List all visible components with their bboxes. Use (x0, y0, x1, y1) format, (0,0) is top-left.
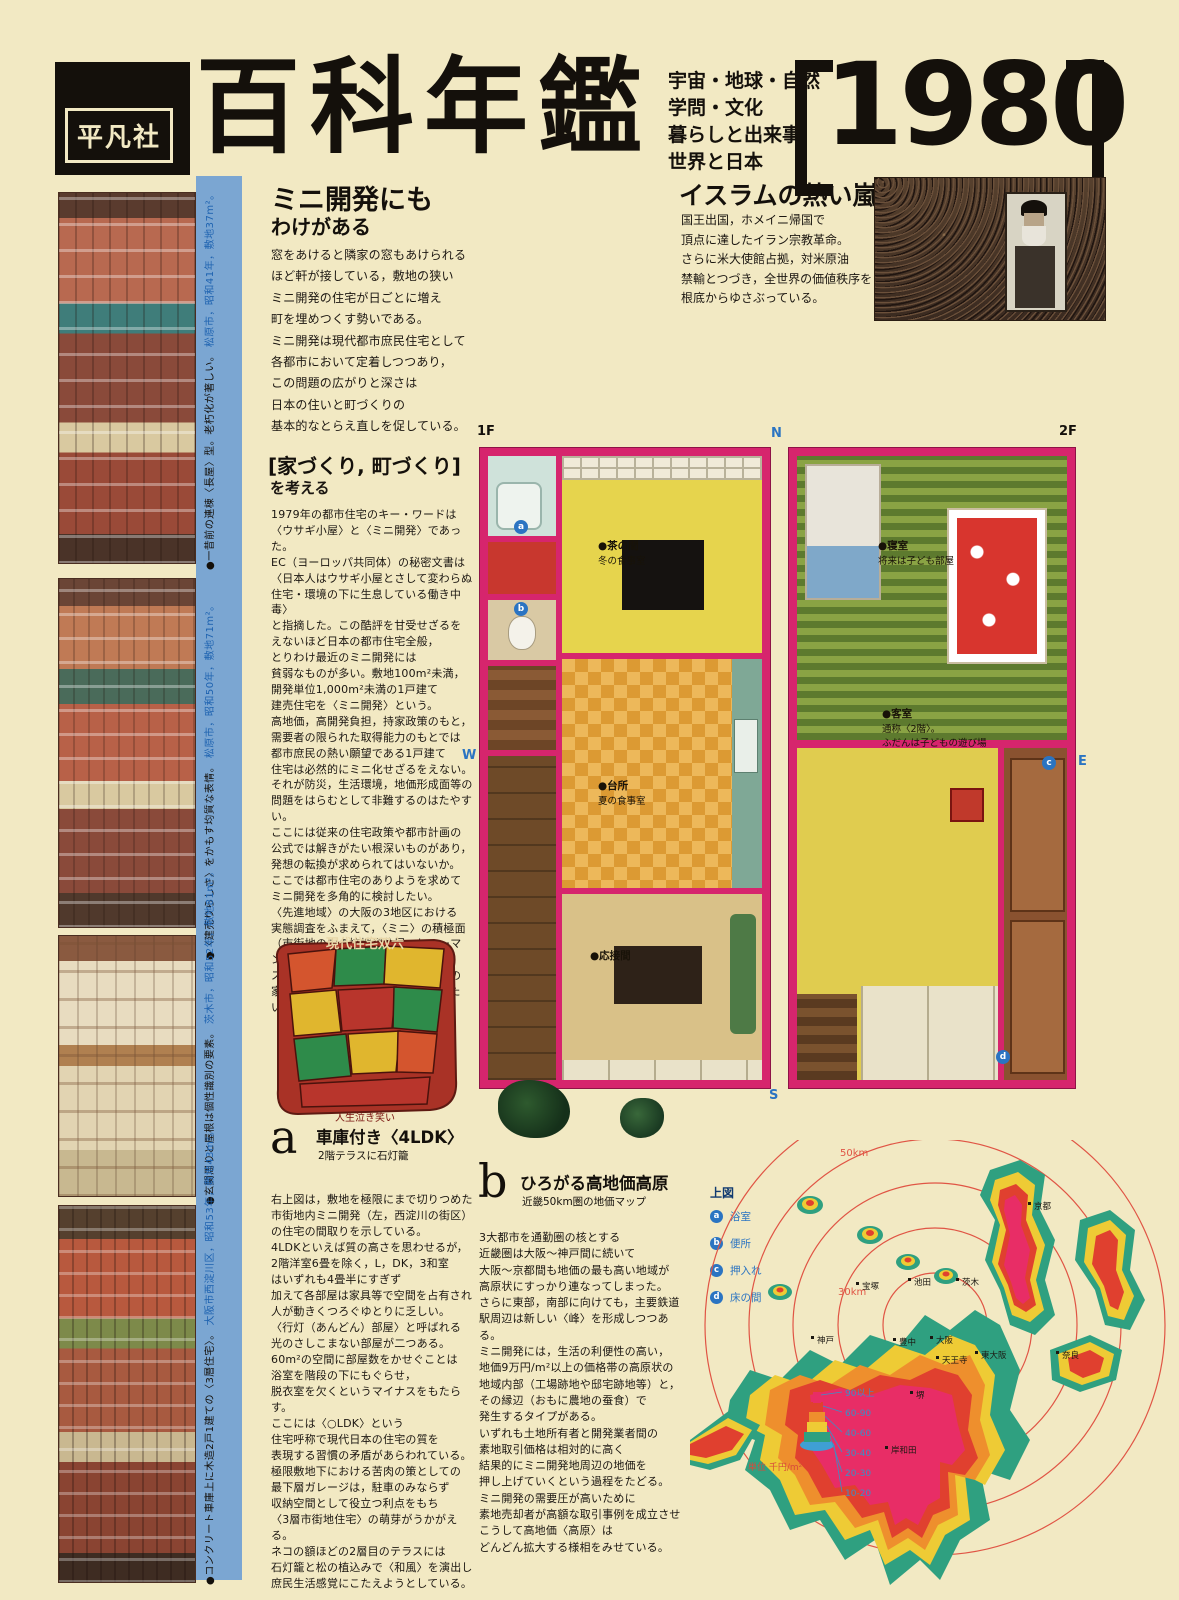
land-price-relief-map: 50km 30km (690, 1140, 1179, 1600)
town-map-patches (288, 946, 444, 1107)
city-ikeda: 池田 (914, 1277, 931, 1288)
futon-poster (947, 508, 1047, 664)
publisher-name: 平凡社 (65, 108, 173, 163)
plan-2f-label: 2F (1059, 424, 1077, 439)
year-bracket-right-icon (1066, 60, 1104, 196)
city-tennoji: 天王寺 (942, 1356, 968, 1366)
price-relief-blobs (690, 1160, 1145, 1585)
house-illustration-tract (58, 578, 196, 928)
room-stairs-2f (797, 994, 857, 1080)
cushion-shape (950, 788, 984, 822)
city-osaka: 大阪 (936, 1335, 954, 1346)
shoji-screen (562, 456, 762, 480)
svg-text:10-20: 10-20 (845, 1489, 871, 1499)
label-chanoma: ●茶の間 冬の食事室 (598, 538, 646, 567)
room-chanoma (562, 456, 762, 653)
compass-east: E (1078, 754, 1087, 769)
machizukuri-title: [家づくり, 町づくり] (268, 450, 461, 479)
city-ibaraki: 茨木 (962, 1277, 980, 1288)
house-illustration-3story (58, 1205, 196, 1583)
mini-article-subtitle: わけがある (271, 211, 371, 240)
room-osetsuma (562, 894, 762, 1080)
khomeini-crowd-photo (875, 178, 1105, 320)
marker-oshiire: c (1042, 756, 1056, 770)
islam-article-body: 国王出国，ホメイニ帰国で 頂点に達したイラン宗教革命。 さらに米大使館占拠，対米… (681, 211, 881, 309)
section-b-body: 3大都市を通勤圏の核とする 近畿圏は大阪〜神戸間に続いて 大阪〜京都間も地価の最… (479, 1230, 687, 1556)
sugoroku-title: 現代住宅双六 (326, 936, 404, 952)
toilet-shape (508, 616, 536, 650)
city-toyonaka: 豊中 (899, 1337, 916, 1348)
section-b-title: ひろがる高地価高原 (520, 1170, 669, 1194)
svg-text:30-40: 30-40 (845, 1449, 871, 1459)
label-osetsuma: ●応接間 (590, 948, 631, 963)
marker-tokonoma: d (996, 1050, 1010, 1064)
city-takarazuka: 宝塚 (862, 1281, 880, 1292)
closet-door (1010, 758, 1065, 912)
city-higashiosaka: 東大阪 (981, 1350, 1007, 1361)
plan-1f-label: 1F (477, 424, 495, 439)
room-kitchen (562, 659, 762, 888)
islam-article-title: イスラムの熱い嵐 (679, 176, 878, 212)
bed-shape (805, 464, 881, 600)
compass-south: S (769, 1088, 778, 1103)
blanket-shape (807, 546, 879, 598)
room-kyakushitsu (797, 748, 998, 1080)
section-b-subtitle: 近畿50km圏の地価マップ (522, 1194, 646, 1209)
ring-label-50km: 50km (840, 1148, 868, 1159)
khomeini-portrait (1005, 192, 1067, 312)
machizukuri-subtitle: を考える (270, 477, 330, 498)
house-caption-1: ●一昔前の連棟〈長屋〉型。老朽化が著しい。 松原市，昭和41年，敷地37m²。 (201, 184, 216, 570)
svg-text:90以上: 90以上 (845, 1388, 874, 1399)
room-bedroom (797, 456, 1067, 740)
section-a-subtitle: 2階テラスに石灯籠 (318, 1148, 408, 1163)
room-stairs-1f (488, 666, 556, 750)
compass-north: N (771, 426, 782, 441)
city-sakai: 堺 (916, 1390, 925, 1401)
tatami-mats (861, 986, 998, 1080)
city-nara: 奈良 (1062, 1350, 1080, 1361)
house-caption-4: ●コンクリート車庫上に木造2戸1建ての〈3層住宅〉。 大阪市西淀川区，昭和53年… (201, 1213, 216, 1585)
svg-text:60-90: 60-90 (845, 1409, 871, 1419)
price-unit-label: 単位 千円/m² (748, 1461, 803, 1473)
compass-west: W (462, 748, 476, 763)
small-tree-illustration (620, 1098, 664, 1138)
city-kobe: 神戸 (817, 1335, 834, 1346)
robe-shape (1015, 246, 1055, 308)
svg-text:20-30: 20-30 (845, 1469, 871, 1479)
section-a-marker: a (270, 1114, 297, 1160)
kitchen-counter (732, 659, 762, 888)
marker-bath: a (514, 520, 528, 534)
label-kitchen: ●台所 夏の食事室 (598, 778, 646, 807)
yearbook-page: 平凡社 百科年鑑 宇宙・地球・自然 学問・文化 暮らしと出来事 世界と日本 19… (0, 0, 1179, 1600)
city-kishiwada: 岸和田 (891, 1446, 917, 1456)
room-genkan-corridor (488, 756, 556, 1080)
room-utility (488, 542, 556, 594)
section-b-marker: b (478, 1158, 507, 1204)
label-bedroom: ●寝室 将来は子ども部屋 (878, 538, 954, 567)
section-a-title: 車庫付き〈4LDK〉 (316, 1124, 463, 1148)
closet-door (1010, 920, 1065, 1074)
house-illustration-entrance (58, 935, 196, 1197)
section-a-body: 右上図は，敷地を極限にまで切りつめた 市街地内ミニ開発（左，西淀川の街区） の住… (271, 1192, 477, 1592)
sugoroku-caption: 人生泣き笑い (335, 1111, 395, 1124)
publisher-logo: 平凡社 (55, 62, 190, 175)
beard-shape (1022, 226, 1046, 246)
sink-shape (734, 719, 758, 773)
marker-toilet: b (514, 602, 528, 616)
sofa-shape (730, 914, 756, 1034)
engawa-band (562, 1060, 762, 1080)
mini-article-body: 窓をあけると隣家の窓もあけられる ほど軒が接している，敷地の狭い ミニ開発の住宅… (271, 245, 475, 438)
city-kyoto: 京都 (1034, 1201, 1052, 1212)
futon-pattern (957, 518, 1037, 654)
page-title: 百科年鑑 (196, 55, 652, 159)
pine-tree-illustration (498, 1080, 570, 1138)
label-kyakushitsu: ●客室 通称〈2階〉。 ふだんは子どもの遊び場 (882, 706, 987, 749)
room-closets (1004, 748, 1067, 1080)
sugoroku-town-map: 現代住宅双六 人生泣き笑い (266, 932, 464, 1124)
svg-text:40-60: 40-60 (845, 1429, 871, 1439)
house-illustration-rowhouse (58, 192, 196, 564)
